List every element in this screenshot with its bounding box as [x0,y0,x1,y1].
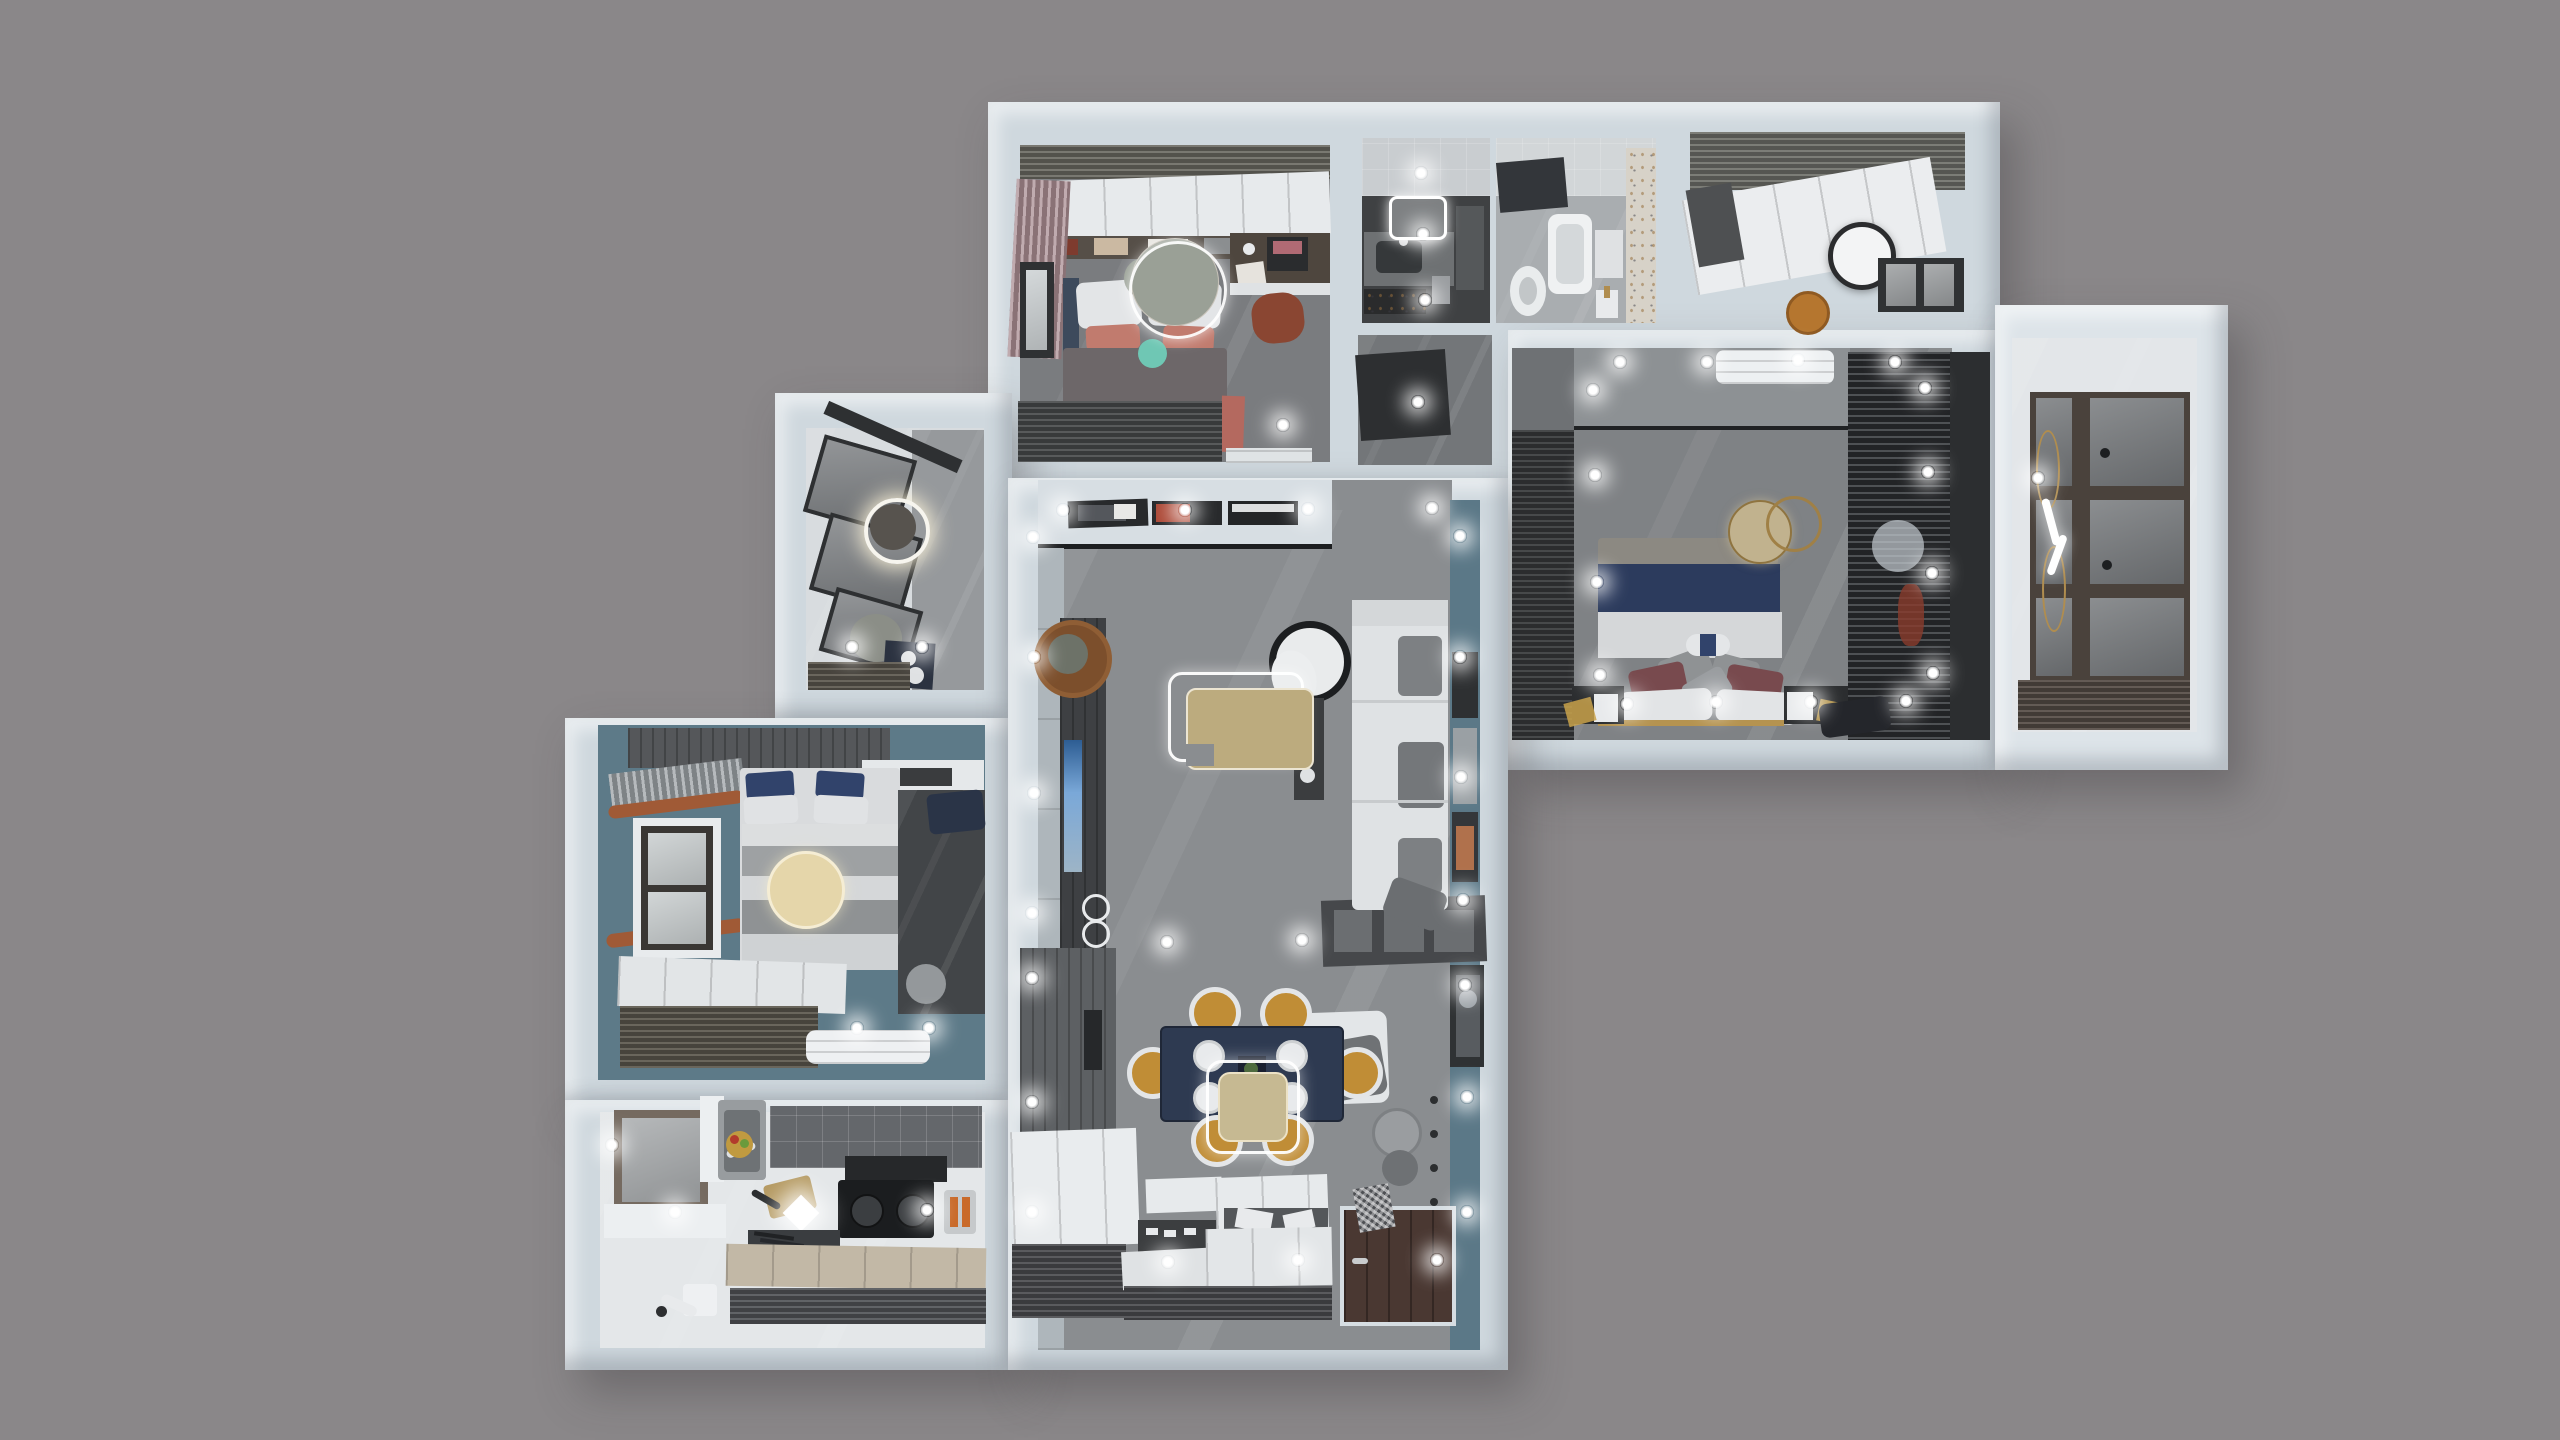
coat-rack-bag[interactable] [1352,1183,1395,1233]
kitchen-toaster-slot-2 [962,1197,970,1227]
wc-bathtub-inner [1556,224,1584,284]
shoe-pair-1 [1146,1228,1158,1235]
sofa-seam-1 [1352,700,1448,703]
kids-mirror-ring [1129,241,1227,339]
ceiling-light [1926,666,1940,680]
balcony-knob-1 [2100,448,2110,458]
ceiling-light [1027,786,1041,800]
ceiling-light [1620,697,1634,711]
leftbed-stripe-1 [742,824,900,846]
master-moon-art [1872,520,1924,572]
ceiling-light [1161,1255,1175,1269]
sideboard-slot-1 [1334,910,1372,952]
living-art-1-paper [1114,504,1136,519]
hallway-ceiling-panel [1355,349,1451,441]
side-table-vase [1300,768,1315,783]
ceiling-light [668,1205,682,1219]
kids-desk-cup [1243,243,1255,255]
closet-window-glass-1 [1886,264,1916,306]
ceiling-light [1590,575,1604,589]
shoe-pair-2 [1164,1230,1176,1237]
ceiling-light [1056,503,1070,517]
balcony-knob-2 [2102,560,2112,570]
kitchen-window-glass [622,1118,700,1202]
ceiling-light [922,1021,936,1035]
ceiling-light [1888,355,1902,369]
ceiling-light [1276,418,1290,432]
ceiling-light [845,640,859,654]
wc-terrazzo-wall [1626,148,1656,323]
wc-glass-partition[interactable] [1496,157,1568,213]
shoe-cabinet-doors[interactable] [1121,1248,1209,1290]
ceiling-light [1025,971,1039,985]
vanity-shelf[interactable] [1456,206,1484,290]
master-headboard-trim [1598,720,1784,726]
kitchen-upper-cabinets[interactable] [726,1244,987,1291]
ceiling-light [920,1203,934,1217]
ceiling-light [1456,893,1470,907]
ceiling-light [1921,465,1935,479]
leftbed-clothes [926,789,986,835]
living-soundbar[interactable] [1084,1010,1102,1070]
coat-hook-3 [1430,1164,1438,1172]
kitchen-cabinet-front [730,1288,986,1324]
ceiling-light [1593,668,1607,682]
ceiling-light [1925,566,1939,580]
ceiling-light [1430,1253,1444,1267]
leftbed-ac-unit[interactable] [806,1030,930,1064]
coat-hook-1 [1430,1096,1438,1104]
sofa-armrest [1352,600,1448,626]
kids-low-cabinet[interactable] [1018,401,1222,462]
big-frame-disc [1459,990,1477,1008]
ceiling-light [1418,293,1432,307]
leftbed-wood-platform[interactable] [620,1006,818,1068]
ceiling-light [1454,770,1468,784]
coat-hook-4 [1430,1198,1438,1206]
coat-rack-hat-2[interactable] [1382,1150,1418,1186]
master-wardrobe-top [1512,348,1574,432]
storage-tall-unit[interactable] [1010,1128,1140,1248]
ceiling-light [2031,471,2045,485]
ceiling-light [1027,650,1041,664]
ceiling-light [915,640,929,654]
sideboard-right-doors[interactable] [1206,1227,1333,1287]
wc-gold-fixture [1604,286,1610,298]
tv-decor-ring-2 [1082,920,1110,948]
vanity-towel [1432,276,1450,304]
balcony-glass-6 [2090,598,2184,676]
leftbed-wardrobe[interactable] [628,728,890,768]
ceiling-light [1700,355,1714,369]
kitchen-fruit-green [740,1139,749,1148]
vanity-mat [1364,289,1426,314]
shoe-cabinet-top[interactable] [1145,1177,1222,1214]
ceiling-light [1425,501,1439,515]
teal-wall-frame-2[interactable] [1453,728,1477,804]
entry-door-handle [1352,1258,1368,1264]
leftbed-window-glass-1 [648,833,706,885]
ceiling-light [1458,978,1472,992]
closet-window-glass-2 [1924,264,1954,306]
kids-shelf-toys [1094,238,1128,255]
balcony-wood-sill [2018,680,2190,730]
leftbed-desk-chair[interactable] [906,964,946,1004]
master-bed-navy-blanket[interactable] [1598,564,1780,614]
leftbed-pillow-white-2 [813,795,868,826]
shoe-pair-3 [1184,1228,1196,1235]
coat-hook-2 [1430,1130,1438,1138]
ceiling-light [1709,695,1723,709]
ceiling-light [1025,1205,1039,1219]
ceiling-light [1791,353,1805,367]
master-bolster-navy [1700,634,1716,656]
vanity-ceiling-tiles [1362,138,1490,196]
master-red-vase-art [1898,584,1924,646]
ceiling-light [1453,529,1467,543]
ceiling-light [1804,695,1818,709]
ceiling-light [1453,650,1467,664]
ceiling-light [605,1138,619,1152]
balcony-gold-oval-1[interactable] [2036,430,2060,510]
wc-shelf[interactable] [1595,230,1623,278]
ceiling-light [1025,906,1039,920]
kids-knot-pillow[interactable] [1138,339,1167,368]
kids-window-glass [1026,270,1047,350]
living-art-3-white [1232,504,1294,512]
master-ceiling-edge [1530,426,1850,430]
floorplan-render [0,0,2560,1440]
master-window-dark [1950,352,1990,740]
ceiling-light [1460,1090,1474,1104]
ceiling-light [1918,381,1932,395]
teal-wall-frame-3-art [1456,826,1474,870]
balcony-glass-2 [2090,398,2184,486]
ceiling-light [1291,1253,1305,1267]
kitchen-toaster[interactable] [944,1190,976,1234]
balcony-glass-4 [2090,500,2184,584]
ceiling-light [1460,1205,1474,1219]
tv-decor-ring-1 [1082,894,1110,922]
leftbed-ceiling-lamp[interactable] [767,851,845,929]
kitchen-fruit-red [730,1135,739,1144]
leftbed-window-glass-2 [648,892,706,944]
vanity-sink[interactable] [1376,241,1422,273]
ceiling-light [1613,355,1627,369]
ceiling-light [1899,694,1913,708]
storage-front-band [1124,1286,1332,1320]
hanging-chair-cushion [1048,634,1088,674]
kids-wardrobe[interactable] [1057,171,1331,242]
kids-bench[interactable] [1226,448,1312,463]
storage-tall-front [1012,1244,1126,1318]
master-ac-unit[interactable] [1716,350,1834,384]
study-wood-cabinet[interactable] [808,662,910,690]
kids-coral-fold [1220,396,1245,453]
ceiling-light [1301,502,1315,516]
ceiling-light [850,1021,864,1035]
ceiling-light [1416,227,1430,241]
ceiling-light [1178,503,1192,517]
kitchen-burner-1 [850,1194,884,1228]
dining-pendant-light[interactable] [1218,1072,1288,1142]
ceiling-light [1025,1095,1039,1109]
master-pendant-ring [1766,496,1822,552]
ceiling-light [1588,468,1602,482]
sofa-pillow-1[interactable] [1398,636,1442,696]
kitchen-pipe-cap [656,1306,667,1317]
ceiling-light [1586,383,1600,397]
kids-laptop-screen [1273,241,1302,254]
master-speaker-left [1594,694,1618,722]
ceiling-light [1414,166,1428,180]
coffee-table-notch [1186,744,1214,766]
sofa-pillow-2[interactable] [1398,742,1444,808]
living-tv-screen[interactable] [1064,740,1082,872]
kitchen-hood[interactable] [845,1156,947,1182]
leftbed-keyboard [900,768,952,786]
kitchen-toaster-slot-1 [950,1197,958,1227]
ceiling-light [1295,933,1309,947]
kitchen-sill [604,1204,726,1238]
ceiling-light [1411,395,1425,409]
leftbed-pillow-white-1 [743,795,798,826]
ceiling-light [1160,935,1174,949]
living-ceiling-shadow [1038,544,1332,549]
wc-toilet-bowl [1519,277,1537,305]
closet-stool[interactable] [1786,291,1830,335]
ceiling-light [1026,530,1040,544]
sofa-seam-2 [1352,800,1448,803]
master-wardrobe[interactable] [1512,430,1574,740]
study-ring-light[interactable] [864,498,930,564]
